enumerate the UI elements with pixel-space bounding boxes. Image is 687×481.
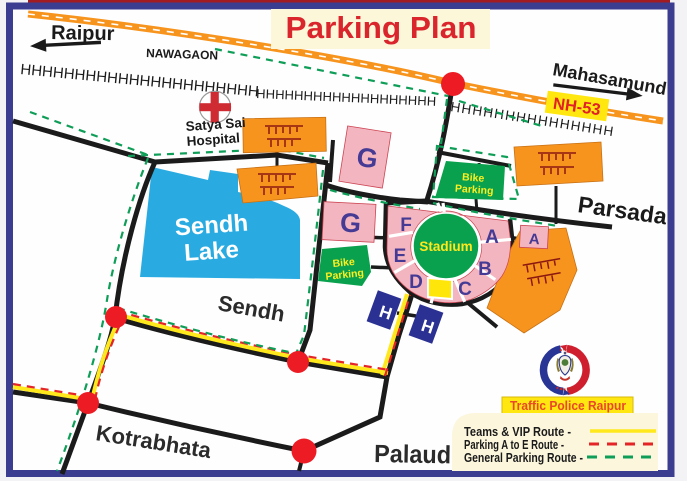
svg-text:Traffic Police Raipur: Traffic Police Raipur: [510, 399, 626, 413]
svg-text:Teams & VIP Route -: Teams & VIP Route -: [464, 425, 571, 439]
svg-text:Parking Plan: Parking Plan: [286, 10, 477, 45]
svg-text:Parking A to E Route -: Parking A to E Route -: [464, 438, 564, 452]
svg-text:G: G: [339, 207, 362, 238]
svg-text:G: G: [355, 142, 380, 175]
svg-text:Palaud: Palaud: [374, 440, 451, 469]
svg-text:E: E: [394, 246, 407, 267]
svg-text:General Parking Route -: General Parking Route -: [464, 451, 583, 465]
svg-text:D: D: [409, 272, 423, 293]
svg-text:A: A: [528, 231, 540, 249]
svg-text:C: C: [458, 279, 472, 300]
svg-text:F: F: [400, 215, 412, 236]
svg-text:Stadium: Stadium: [419, 239, 472, 254]
svg-text:Lake: Lake: [183, 236, 239, 267]
svg-text:B: B: [478, 259, 492, 280]
svg-text:A: A: [485, 227, 499, 248]
svg-text:NAWAGAON: NAWAGAON: [146, 46, 218, 63]
